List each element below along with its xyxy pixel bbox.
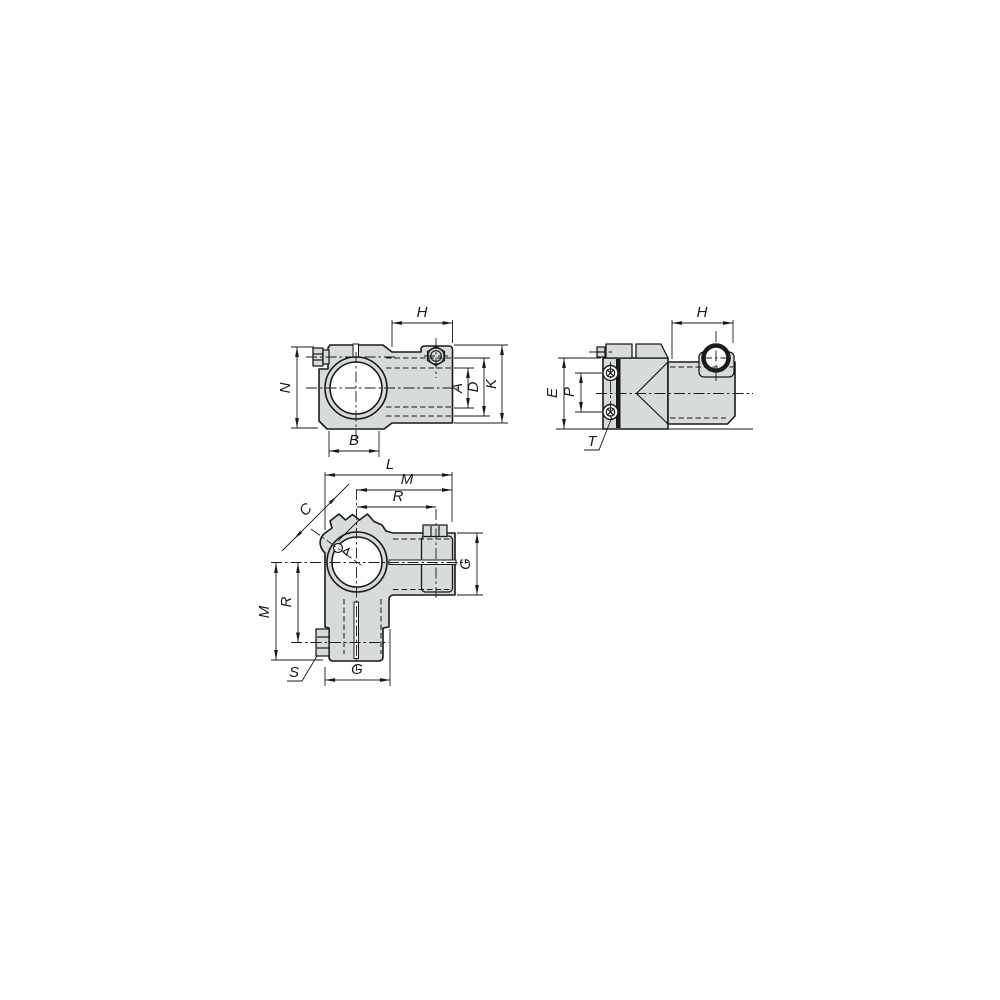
dim-label-plan-C: C <box>296 500 316 520</box>
dim-label-front-B: B <box>349 432 359 449</box>
side-view: H E P T <box>544 304 753 450</box>
dim-label-side-P: P <box>561 387 578 397</box>
front-view: H N A D K B <box>277 304 508 457</box>
dim-label-plan-R-top: R <box>393 488 404 505</box>
dim-label-side-H: H <box>697 304 708 321</box>
side-part-body <box>556 331 753 429</box>
dim-label-plan-M-left: M <box>256 605 273 618</box>
technical-drawing: H N A D K B <box>0 0 1000 1000</box>
dim-label-plan-G-bottom: G <box>351 661 363 678</box>
dim-label-plan-M-top: M <box>401 471 414 488</box>
callout-label-S: S <box>289 664 299 681</box>
side-tab-right <box>636 344 668 358</box>
dim-label-front-H: H <box>417 304 428 321</box>
dim-label-plan-L: L <box>386 456 394 473</box>
drawing-canvas: H N A D K B <box>0 0 1000 1000</box>
plan-view: L M R C G M R G <box>256 456 483 686</box>
front-part-body <box>306 338 458 443</box>
dim-label-front-K: K <box>483 378 500 389</box>
dim-label-plan-R-left: R <box>278 596 295 607</box>
side-tab-left <box>606 344 632 358</box>
dim-label-front-D: D <box>465 381 482 392</box>
plan-part-body <box>271 489 468 671</box>
plan-right-hex-head <box>423 525 447 537</box>
dim-label-side-E: E <box>544 387 561 398</box>
callout-label-T: T <box>587 433 598 450</box>
dim-label-plan-G-right: G <box>457 558 474 570</box>
dim-label-front-A: A <box>449 383 466 394</box>
dim-label-front-N: N <box>277 382 294 393</box>
